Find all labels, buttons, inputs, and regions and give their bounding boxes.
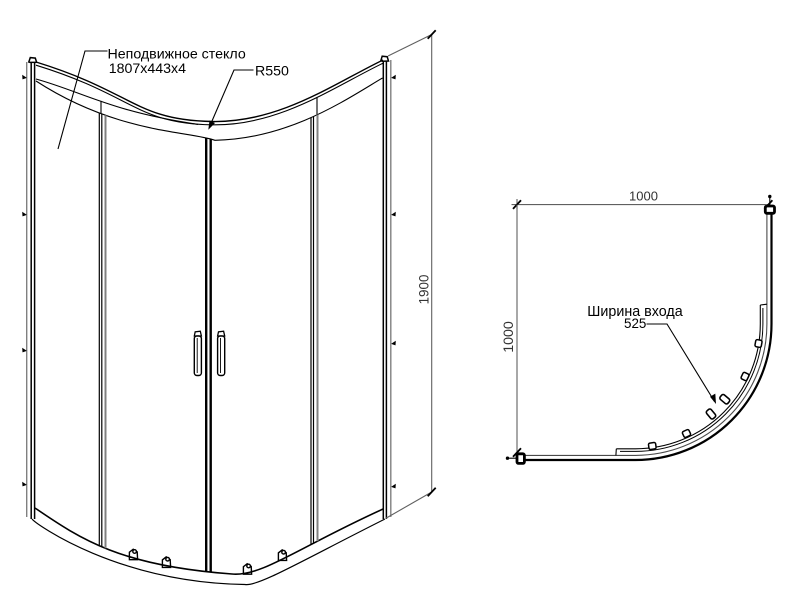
svg-text:1000: 1000 (501, 321, 517, 353)
svg-text:1000: 1000 (629, 188, 658, 203)
svg-text:R550: R550 (255, 63, 289, 79)
svg-text:1900: 1900 (417, 275, 432, 305)
svg-text:525: 525 (624, 316, 646, 331)
svg-text:1807х443х4: 1807х443х4 (109, 61, 186, 77)
